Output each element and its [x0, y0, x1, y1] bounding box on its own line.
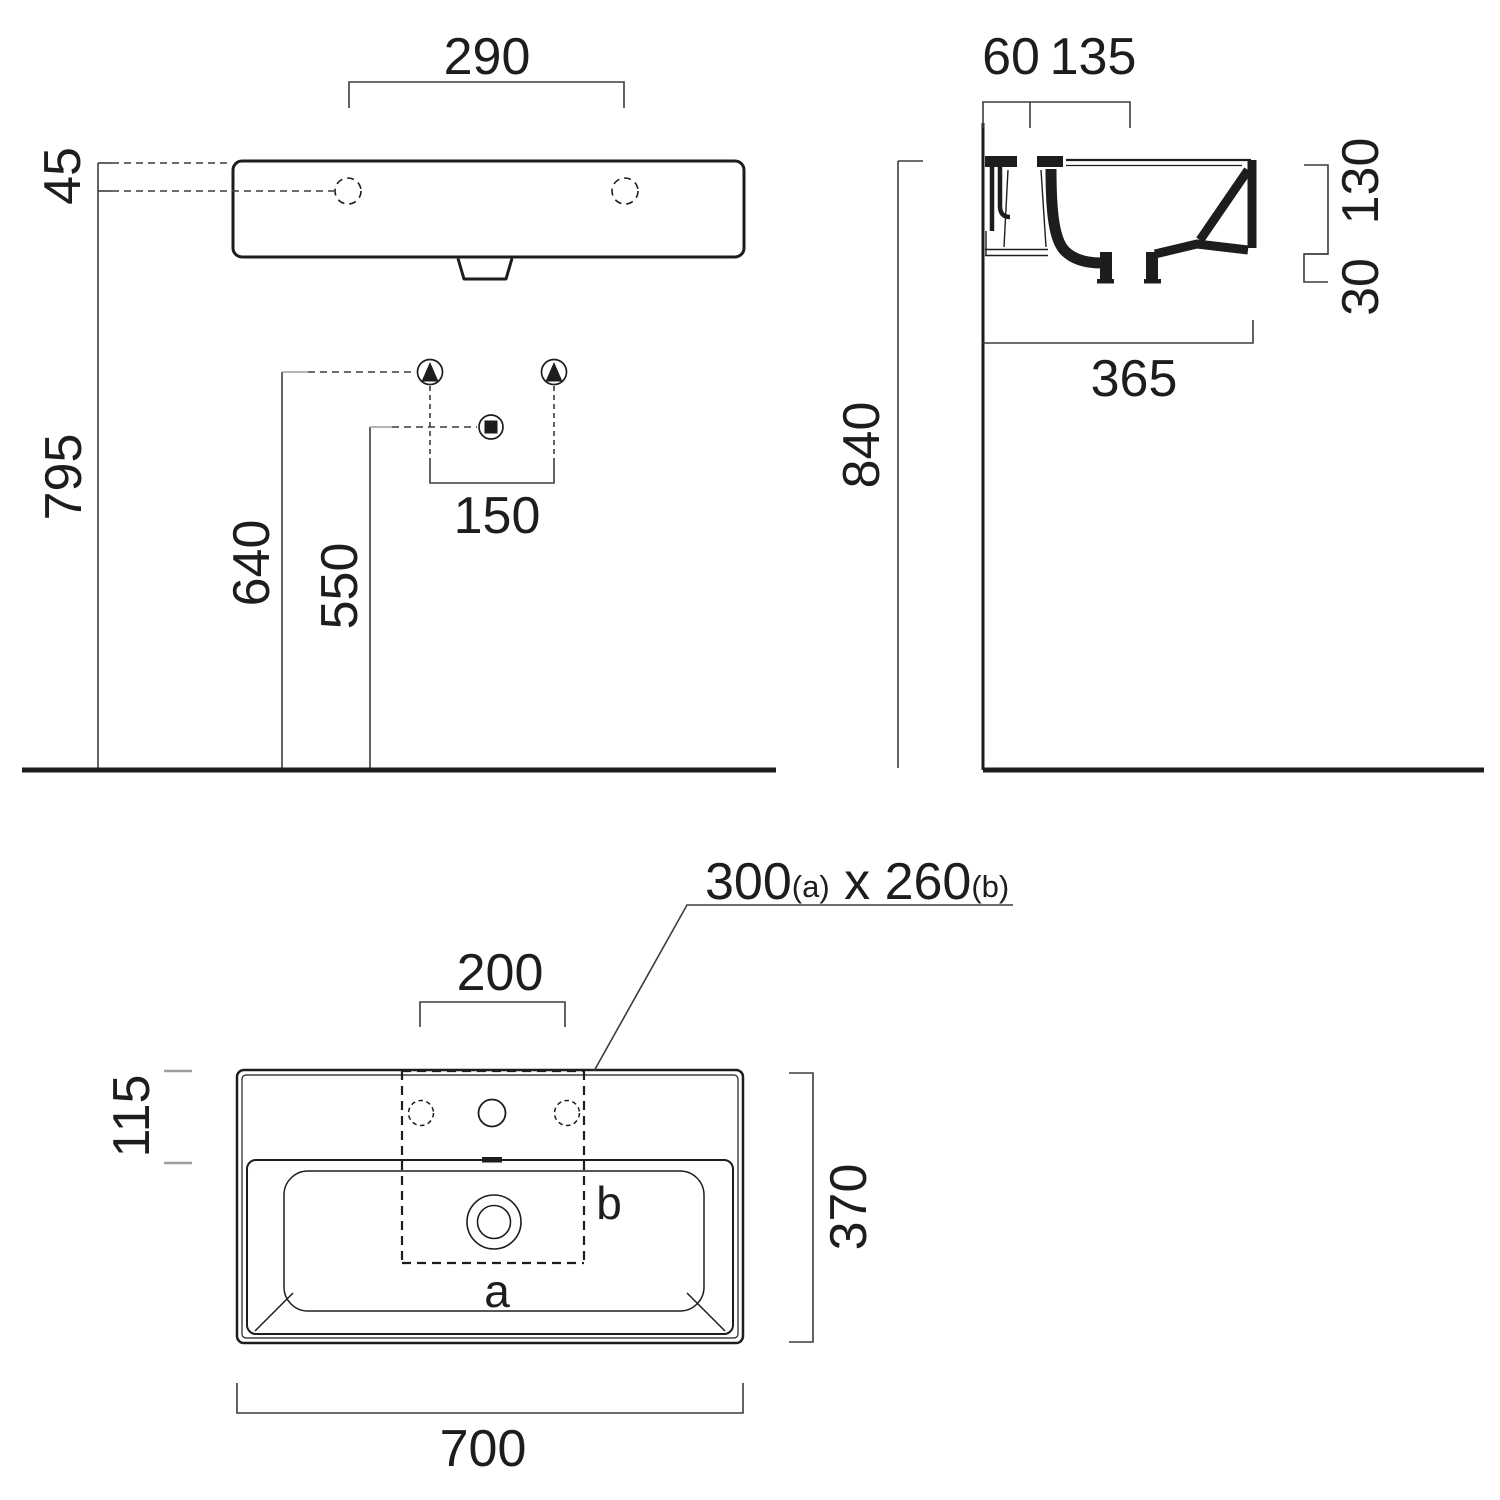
plan-view: b a 200 115 370 700 300(a) x 260(b)	[103, 853, 1013, 1478]
front-basin-body	[233, 161, 744, 257]
label-b: b	[596, 1177, 622, 1229]
dim-45-label: 45	[34, 147, 92, 205]
cutout-note-a: (a)	[792, 869, 830, 904]
square-icon	[485, 421, 498, 434]
dim-370-label: 370	[820, 1164, 878, 1251]
dim-795-label: 795	[35, 434, 93, 521]
plan-overflow-slot	[482, 1157, 502, 1163]
section-drain-wall-left	[1100, 252, 1112, 283]
front-faucet-hole-left	[335, 178, 361, 204]
dim-115-label: 115	[103, 1075, 161, 1158]
supply-symbol-left	[418, 360, 443, 385]
section-body-outline	[985, 170, 1048, 256]
dim-130-bracket	[1304, 165, 1328, 254]
dim-370-bracket	[789, 1073, 813, 1342]
triangle-icon	[546, 362, 563, 382]
section-drain-foot-left	[1097, 279, 1114, 284]
dim-200-label: 200	[457, 944, 544, 1002]
basin-cross-section	[985, 156, 1252, 284]
dim-365-label: 365	[1091, 350, 1178, 408]
dim-30-label: 30	[1332, 258, 1390, 316]
triangle-icon	[422, 362, 439, 382]
label-a: a	[484, 1265, 510, 1317]
cutout-note-b: (b)	[971, 869, 1009, 904]
front-faucet-hole-right	[612, 178, 638, 204]
plan-corner-slope-left	[255, 1293, 293, 1331]
section-deck-left	[985, 156, 1017, 167]
dim-640-label: 640	[223, 520, 281, 607]
cutout-leader-line	[594, 905, 1013, 1071]
dim-700-bracket	[237, 1383, 743, 1413]
cutout-note-300: 300	[705, 853, 792, 911]
section-back-hook	[1000, 167, 1010, 217]
dim-700-label: 700	[440, 1420, 527, 1478]
dim-60-135-bracket	[983, 102, 1130, 128]
plan-drain-inner	[478, 1206, 511, 1239]
section-trap-curve	[1051, 169, 1101, 263]
dim-150-bracket	[430, 458, 554, 483]
dim-130-label: 130	[1332, 138, 1390, 225]
side-view: 840 60 135	[833, 28, 1484, 770]
drain-symbol	[479, 415, 503, 439]
dim-200-bracket	[420, 1002, 565, 1027]
dim-365-bracket	[983, 320, 1253, 343]
dim-150-label: 150	[454, 487, 541, 545]
section-basin-bottom	[1155, 244, 1248, 254]
plan-drain-outer	[467, 1195, 521, 1249]
section-deck-right	[1037, 156, 1063, 167]
dim-840-label: 840	[833, 402, 891, 489]
dim-135-label: 135	[1050, 28, 1137, 86]
front-view: 290 45 795 640 550	[22, 28, 776, 770]
front-drain-stub	[458, 259, 512, 280]
dim-30-bracket	[1304, 254, 1328, 282]
plan-faucet-hole-center	[479, 1100, 506, 1127]
cutout-note-x: x	[830, 853, 885, 911]
dim-60-label: 60	[982, 28, 1040, 86]
section-inner-slope	[1200, 170, 1248, 240]
dim-550-label: 550	[311, 543, 369, 630]
section-drain-foot-right	[1144, 279, 1161, 284]
supply-symbol-right	[542, 360, 567, 385]
cutout-note-260: 260	[885, 853, 972, 911]
dim-290-label: 290	[444, 28, 531, 86]
technical-drawing-page: 290 45 795 640 550	[0, 0, 1500, 1500]
plan-faucet-hole-right	[555, 1101, 580, 1126]
plan-faucet-hole-left	[409, 1101, 434, 1126]
plan-corner-slope-right	[687, 1293, 725, 1331]
washbasin-dimension-drawing: 290 45 795 640 550	[0, 0, 1500, 1500]
cutout-note: 300(a) x 260(b)	[705, 853, 1009, 911]
